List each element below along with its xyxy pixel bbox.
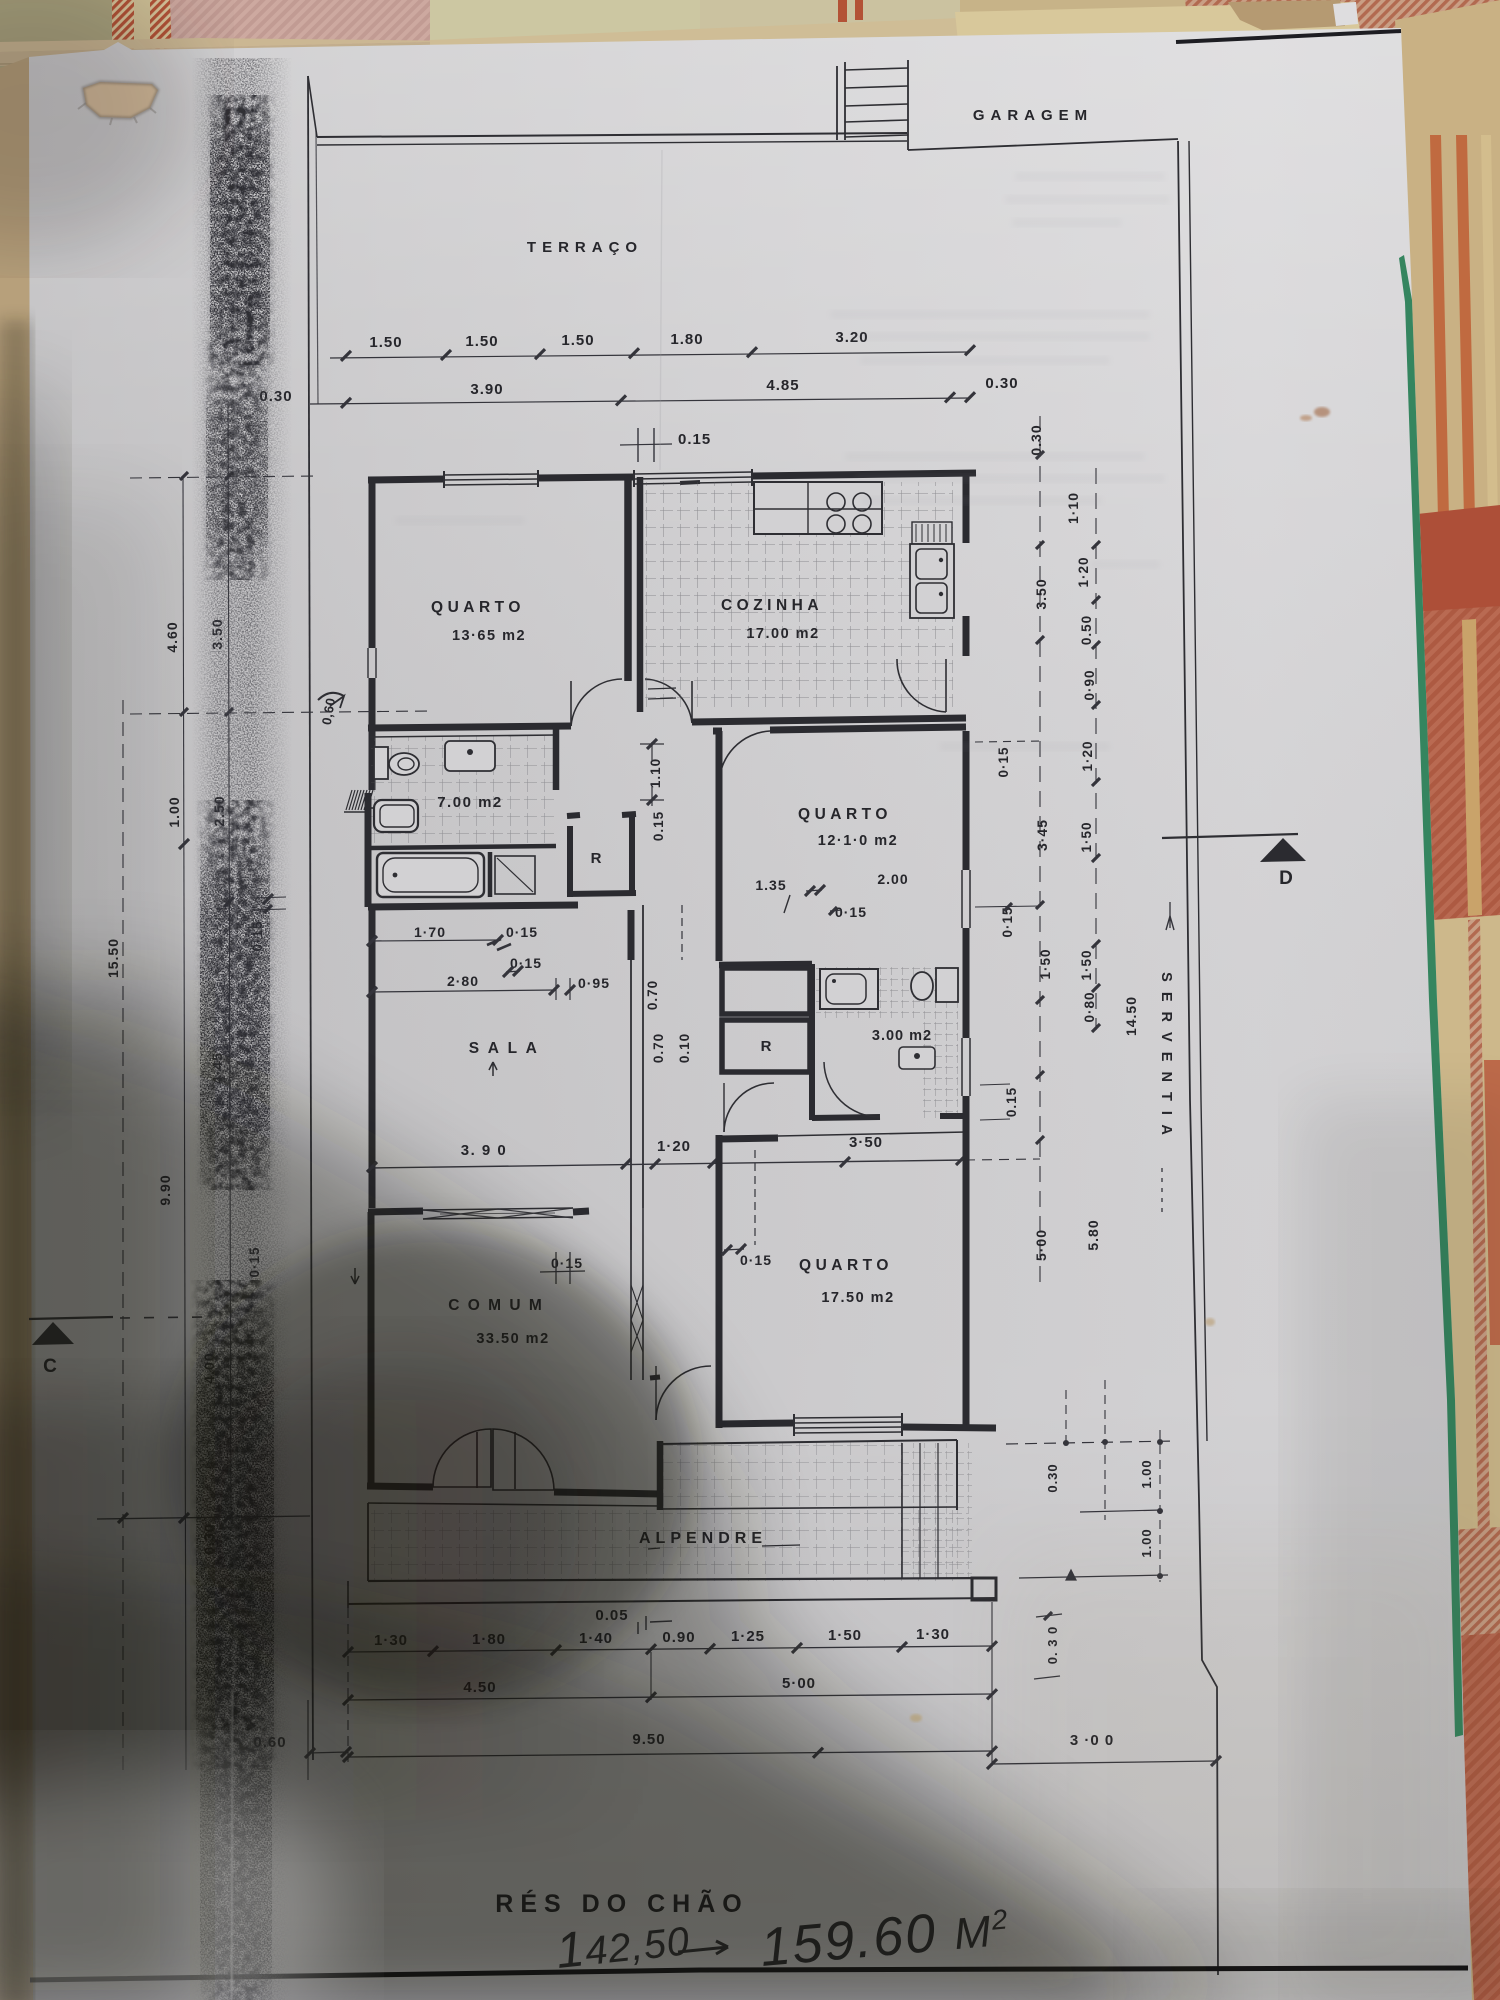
svg-text:1.50: 1.50 [465,333,498,350]
svg-text:0.15: 0.15 [1004,1087,1019,1117]
svg-text:TERRAÇO: TERRAÇO [527,239,643,256]
svg-text:5.80: 5.80 [1085,1219,1101,1250]
svg-text:14.50: 14.50 [1123,996,1139,1036]
svg-text:GARAGEM: GARAGEM [973,107,1093,124]
svg-text:0·15: 0·15 [835,904,867,920]
svg-text:0.15: 0.15 [651,811,666,841]
svg-text:1·30: 1·30 [916,1626,950,1643]
svg-text:1.50: 1.50 [369,334,402,351]
svg-text:0.30: 0.30 [1045,1463,1060,1492]
svg-text:17.00 m2: 17.00 m2 [746,626,819,642]
svg-text:D: D [1279,868,1293,889]
svg-text:1·50: 1·50 [1079,949,1094,980]
svg-text:1.00: 1.00 [1139,1459,1154,1488]
svg-text:12·1·0 m2: 12·1·0 m2 [818,833,898,849]
svg-text:S E R V E N T I A: S E R V E N T I A [1158,972,1174,1138]
svg-text:0·15: 0·15 [510,955,542,971]
svg-text:7.00 m2: 7.00 m2 [437,794,503,811]
svg-text:R: R [761,1038,772,1055]
svg-text:1·20: 1·20 [657,1138,691,1155]
svg-text:3. 9 0: 3. 9 0 [461,1142,508,1159]
svg-text:1.80: 1.80 [670,331,703,348]
svg-text:R: R [591,850,602,867]
svg-text:0.70: 0.70 [645,980,660,1010]
svg-text:COZINHA: COZINHA [721,597,823,614]
svg-text:QUARTO: QUARTO [431,599,525,616]
svg-text:1.10: 1.10 [648,758,663,788]
svg-text:0·15: 0·15 [1000,906,1015,937]
svg-text:3·50: 3·50 [849,1134,883,1151]
svg-text:0·95: 0·95 [578,975,610,991]
svg-text:0·15: 0·15 [506,924,538,940]
svg-text:3.90: 3.90 [470,381,503,398]
svg-text:17.50 m2: 17.50 m2 [821,1290,894,1306]
svg-text:1·50: 1·50 [1038,948,1053,979]
svg-text:0·15: 0·15 [996,746,1011,777]
svg-text:3.00 m2: 3.00 m2 [872,1028,932,1044]
svg-text:1.50: 1.50 [561,332,594,349]
svg-text:1·70: 1·70 [414,924,446,940]
svg-text:1·50: 1·50 [828,1627,862,1644]
svg-text:0·15: 0·15 [740,1252,772,1268]
svg-text:3.50: 3.50 [1033,578,1049,609]
svg-text:4.60: 4.60 [164,621,180,652]
svg-text:0·80: 0·80 [1082,991,1097,1022]
svg-text:S A L A: S A L A [469,1040,540,1057]
svg-text:1.00: 1.00 [166,796,182,827]
svg-text:QUARTO: QUARTO [799,1257,893,1274]
svg-text:0.30: 0.30 [1028,424,1044,455]
svg-text:0.10: 0.10 [677,1033,692,1063]
svg-text:5·00: 5·00 [1033,1229,1049,1261]
svg-text:13·65 m2: 13·65 m2 [452,628,526,644]
svg-text:0.50: 0.50 [1079,615,1094,645]
svg-text:1·50: 1·50 [1079,821,1094,852]
svg-text:3·45: 3·45 [1034,819,1050,851]
svg-text:QUARTO: QUARTO [798,806,892,823]
svg-text:0.30: 0.30 [985,375,1018,392]
svg-text:0.70: 0.70 [651,1033,666,1063]
svg-text:4.85: 4.85 [766,377,799,394]
svg-text:2·80: 2·80 [447,973,479,989]
svg-text:1.35: 1.35 [755,877,786,893]
svg-text:0.15: 0.15 [678,431,711,448]
svg-text:2.00: 2.00 [877,871,908,887]
svg-text:1·20: 1·20 [1076,556,1091,587]
svg-text:0·90: 0·90 [1082,669,1097,700]
